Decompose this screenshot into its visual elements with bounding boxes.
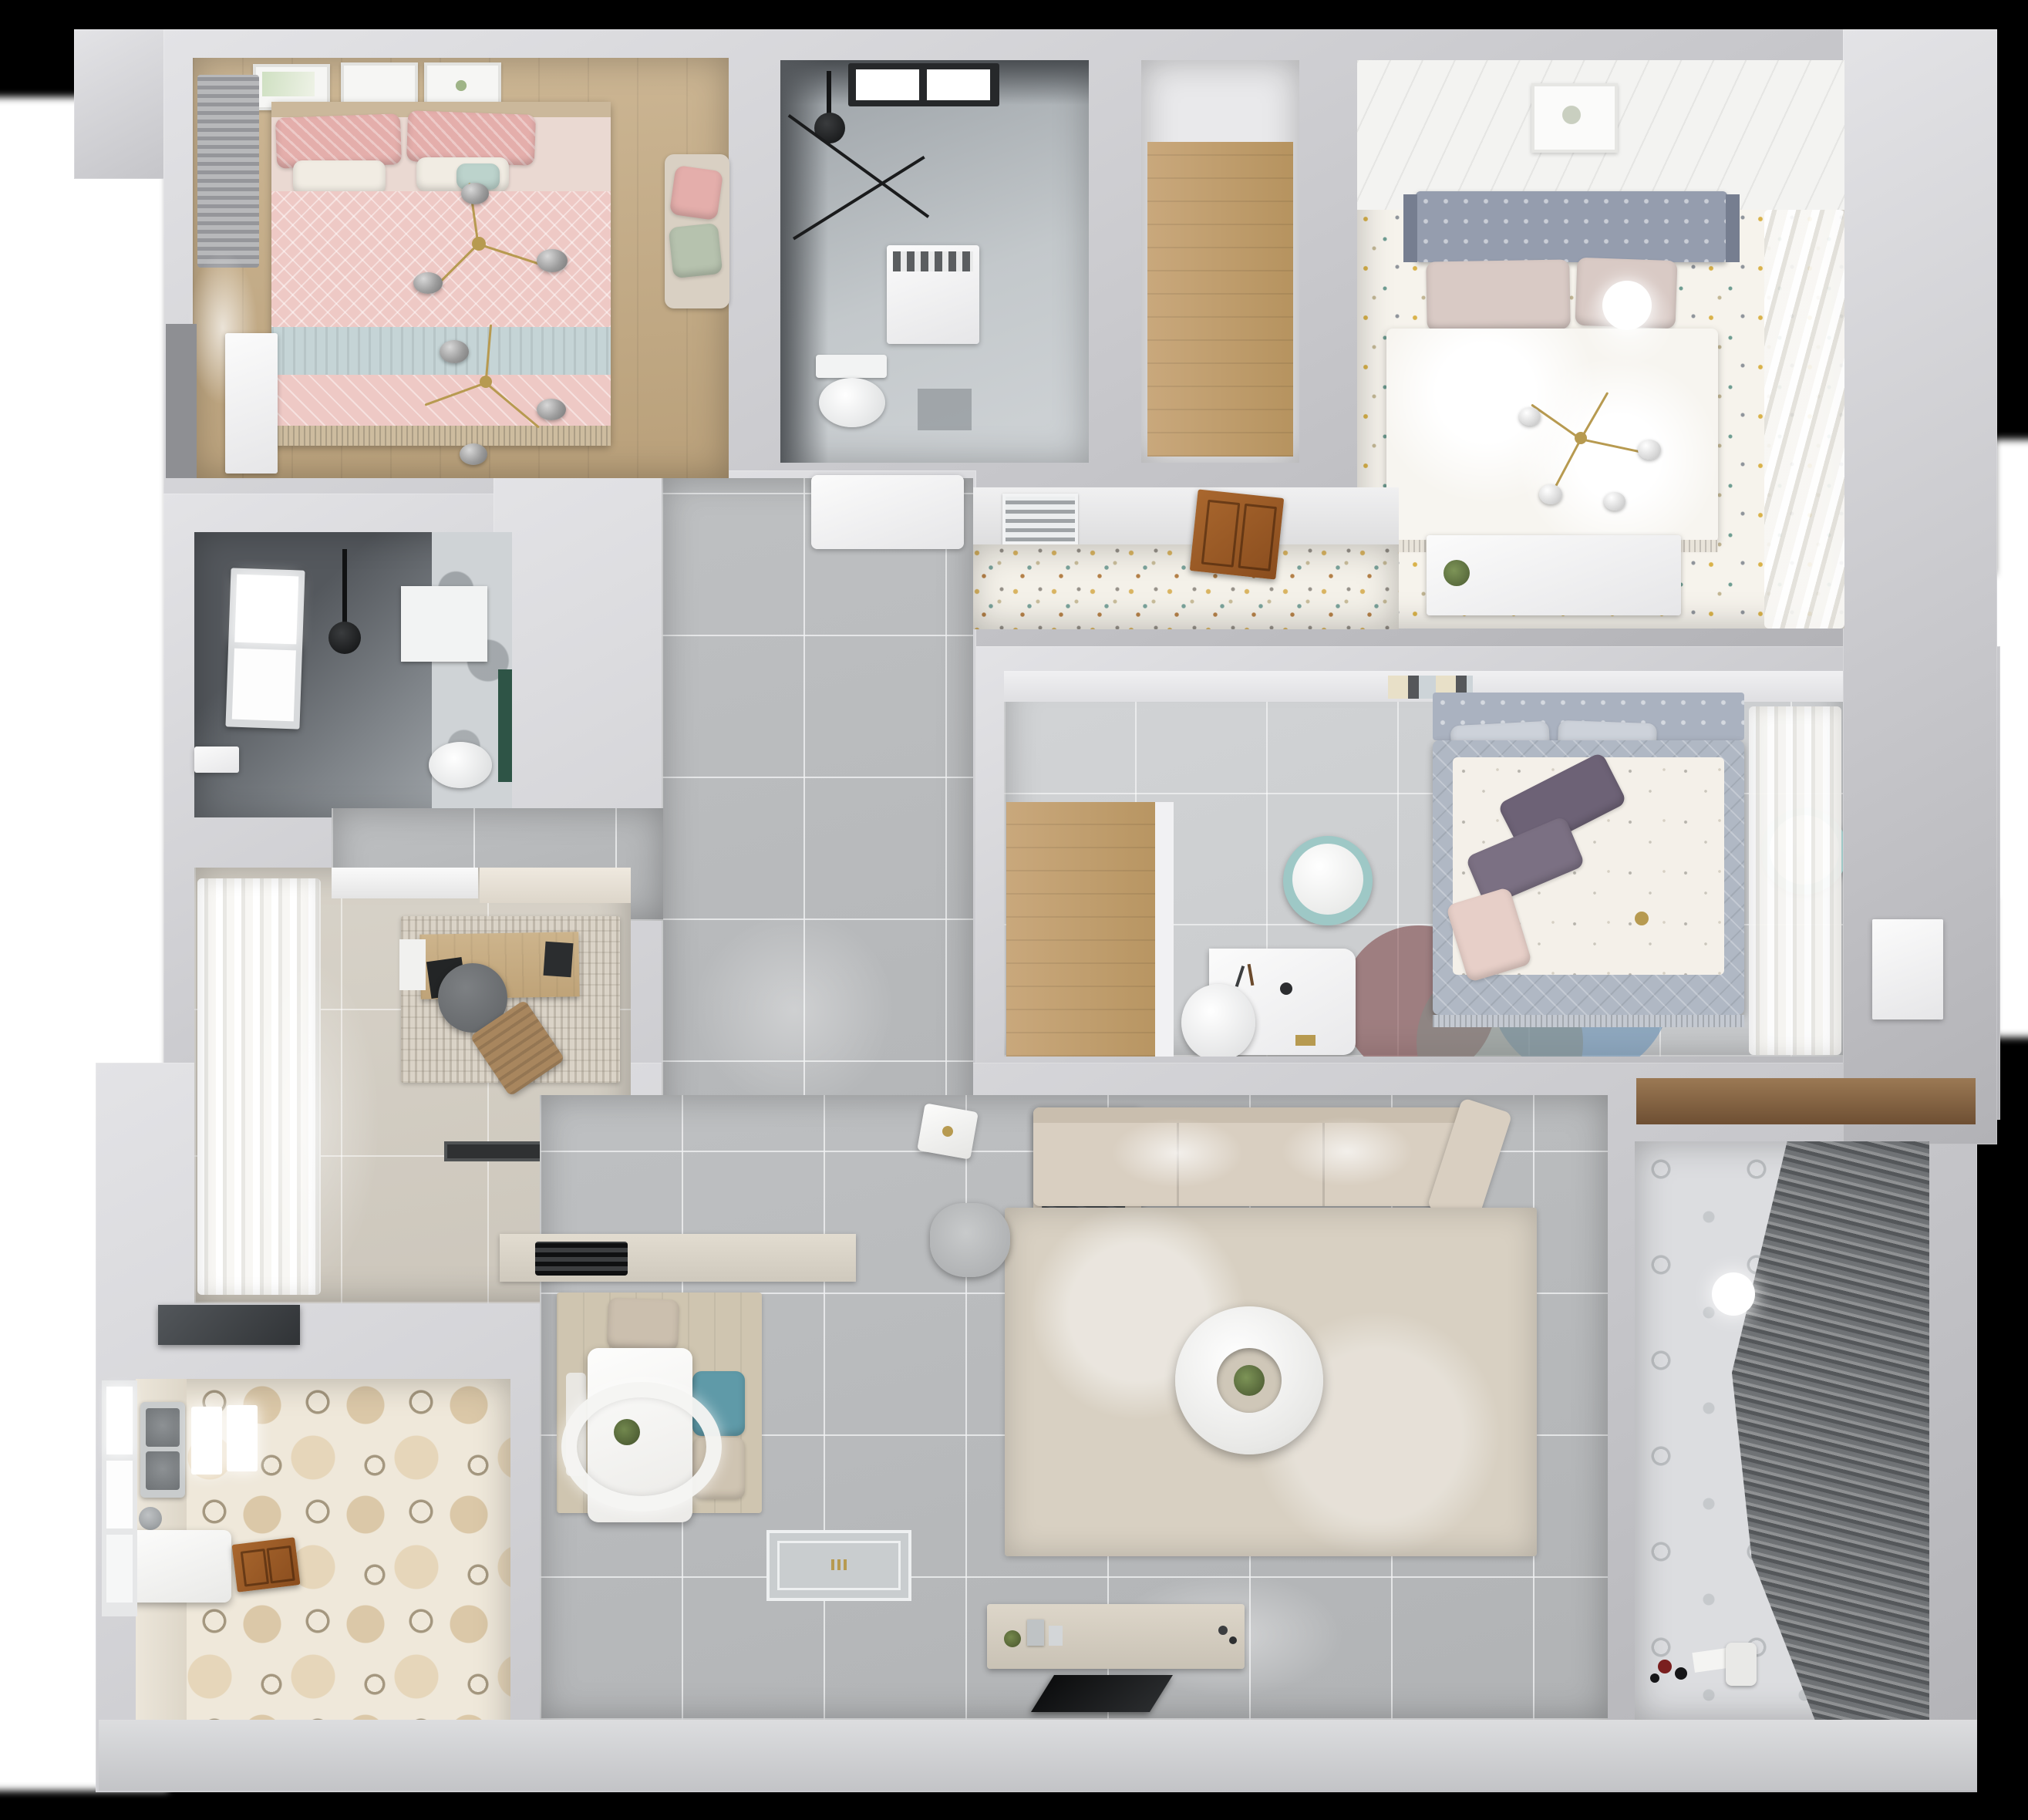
light-board	[227, 1405, 258, 1471]
side-table	[917, 1103, 979, 1159]
chandelier-bulb	[460, 443, 487, 465]
curtain-glow	[241, 960, 379, 1284]
pen	[1235, 966, 1245, 987]
kitchen-window	[102, 1380, 137, 1616]
shower-arm	[342, 549, 347, 623]
doorway-shadow	[166, 324, 197, 478]
toilet-bowl	[429, 742, 492, 788]
sheer-curtain-right	[1764, 210, 1844, 629]
wall-panel	[480, 868, 631, 903]
toy	[1675, 1667, 1687, 1680]
chandelier-hub	[480, 376, 492, 388]
sofa-light-glow	[1282, 1117, 1413, 1186]
chandelier-bulb	[440, 340, 469, 363]
wall-art-frame	[1531, 83, 1618, 153]
cooktop	[535, 1242, 628, 1276]
white-door-leaf	[225, 333, 278, 474]
pendant-ball-light	[1712, 1272, 1755, 1316]
chandelier-bulb	[1519, 407, 1541, 426]
chandelier	[1496, 384, 1666, 523]
paper	[1692, 1648, 1728, 1673]
pillow-sage	[669, 223, 723, 278]
console-frame	[1027, 1619, 1044, 1646]
pillow-beige	[1426, 259, 1571, 331]
pendant-ring-lamp	[561, 1382, 722, 1512]
master-bedroom	[193, 58, 729, 478]
wardrobe-wood-strip	[1006, 802, 1173, 1057]
pillow-white	[293, 160, 386, 194]
skylight-window	[848, 63, 999, 106]
chandelier-branch	[1581, 438, 1646, 454]
table-plant	[614, 1419, 640, 1445]
bed-fringe	[1433, 1015, 1744, 1027]
bedroom-middle	[1004, 671, 1843, 1057]
entry-corridor	[970, 487, 1399, 629]
chandelier-bulb	[537, 249, 568, 272]
balcony	[1635, 1141, 1929, 1720]
floor-drain	[918, 389, 972, 430]
corridor-terrazzo-floor	[970, 544, 1399, 629]
dining-area	[540, 1272, 972, 1627]
sink-basin	[146, 1408, 180, 1447]
window	[225, 568, 305, 729]
chandelier-hub	[472, 237, 486, 251]
window-pane	[927, 69, 990, 100]
donut-coffee-table	[1175, 1306, 1323, 1454]
washer-controls	[893, 251, 973, 271]
white-door-right	[1872, 919, 1943, 1020]
bedside-stool	[1283, 836, 1373, 925]
desk-chair	[1181, 984, 1255, 1057]
gold-chandelier	[386, 150, 617, 474]
stool-top	[1292, 844, 1363, 915]
sofa-back-edge	[1033, 1107, 1470, 1123]
double-sink	[140, 1402, 185, 1498]
toilet-tank	[816, 355, 887, 378]
door-mat	[444, 1141, 549, 1161]
bedroom-guest	[1357, 60, 1844, 629]
bottom-cut-wall	[99, 1720, 1977, 1791]
gold-tray	[1295, 1035, 1316, 1046]
window-pane	[106, 1461, 133, 1528]
kitchen-door	[232, 1537, 301, 1592]
tv-panel	[1031, 1675, 1173, 1712]
chandelier-hub	[1575, 432, 1587, 444]
armchair	[665, 154, 729, 308]
window-pane	[232, 649, 296, 722]
window-pane	[106, 1387, 133, 1454]
gold-decor	[942, 1125, 954, 1137]
desk-mat	[399, 939, 426, 990]
shower-head	[328, 622, 361, 654]
storage-nook	[1141, 60, 1299, 463]
tv-console	[987, 1604, 1245, 1669]
chandelier-bulb	[461, 183, 489, 204]
chandelier-bulb	[413, 272, 443, 294]
mat-gold-motif	[831, 1559, 848, 1570]
toy	[1658, 1660, 1672, 1673]
window-pane	[856, 69, 919, 100]
wall-board	[401, 586, 487, 662]
ceiling-lamp	[1602, 281, 1652, 330]
green-accent-strip	[498, 669, 512, 782]
table-plant	[1234, 1365, 1265, 1396]
chandelier-branch	[425, 382, 487, 406]
sofa-light-glow	[1112, 1118, 1243, 1188]
door-panel	[1201, 500, 1241, 568]
nook-wood-floor	[1147, 142, 1293, 457]
floorplan-stage	[0, 0, 2028, 1820]
small-shelf	[194, 747, 239, 773]
pen	[1248, 964, 1255, 986]
small-stool	[1726, 1643, 1757, 1686]
chandelier-branch	[485, 382, 540, 428]
chandelier-bulb	[537, 399, 566, 420]
dining-chair-beige	[607, 1297, 679, 1350]
wardrobe-edge-board	[1155, 802, 1174, 1057]
balcony-niche-shelf	[1636, 1078, 1976, 1124]
sheer-curtain-right	[1749, 706, 1841, 1055]
bathroom-second	[194, 532, 512, 817]
dark-blinds	[1732, 1141, 1929, 1720]
range-hood	[158, 1305, 300, 1345]
air-vent	[1002, 494, 1078, 544]
window-pane	[106, 1535, 133, 1603]
gold-ornament	[1635, 912, 1649, 925]
console-candle	[1218, 1626, 1228, 1635]
chandelier-bulb	[1604, 492, 1625, 511]
entry-door	[1190, 489, 1284, 579]
plant	[1444, 560, 1470, 586]
armchair	[930, 1203, 1010, 1277]
art-plant-print	[262, 72, 315, 96]
console-candle	[1229, 1636, 1237, 1644]
tufted-headboard	[1416, 191, 1727, 262]
door-panel	[1238, 504, 1277, 571]
kitchen	[136, 1379, 510, 1763]
toy	[1650, 1673, 1659, 1683]
door-panel	[266, 1545, 295, 1584]
art-sketch	[1553, 97, 1590, 133]
pillow-pink	[669, 165, 723, 221]
chandelier-branch	[485, 325, 493, 383]
kettle	[139, 1507, 162, 1530]
art-leaf-print	[447, 75, 475, 96]
door-panel	[241, 1549, 269, 1587]
window-pane	[234, 575, 298, 645]
hall-light-glow	[694, 910, 894, 1111]
desk-knob	[1280, 982, 1292, 995]
wall-shelf	[332, 868, 478, 898]
headboard-rail	[1726, 194, 1740, 262]
chandelier-bulb	[1638, 440, 1661, 460]
light-board	[191, 1407, 222, 1475]
sink-basin	[146, 1451, 180, 1490]
console-plant	[1004, 1630, 1021, 1647]
shower-arm	[827, 71, 831, 119]
hall-sideboard	[811, 475, 964, 549]
washing-machine	[887, 245, 979, 344]
window-blinds	[197, 75, 259, 268]
chandelier-bulb	[1539, 484, 1562, 504]
headboard-rail	[1403, 194, 1417, 262]
bathroom-main	[780, 60, 1089, 463]
console-frame	[1049, 1626, 1063, 1646]
toilet-bowl	[819, 378, 885, 427]
tablet	[544, 942, 574, 977]
ornate-door-mat	[766, 1530, 911, 1601]
